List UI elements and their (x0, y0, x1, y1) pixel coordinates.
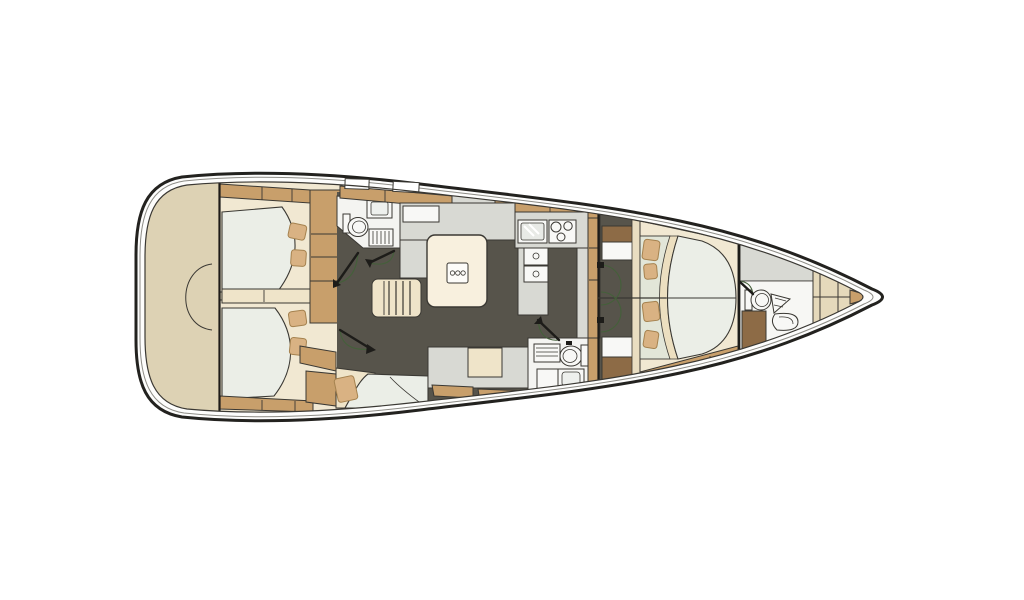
cabin-divider-shelf (222, 289, 310, 303)
pillow (334, 375, 359, 403)
shower-grate (534, 344, 560, 362)
refrigerator (524, 266, 548, 282)
refrigerator (524, 248, 548, 265)
deck-hatch (345, 179, 369, 190)
galley-counter-stbd (577, 248, 588, 338)
pillow (290, 250, 306, 267)
toilet-tank (581, 345, 588, 366)
vestibule-locker (602, 242, 635, 260)
cabin-foot-wall (306, 371, 336, 406)
wash-basin (772, 313, 798, 330)
nav-seat-cushion (468, 348, 502, 377)
interior (138, 180, 888, 420)
sideboard-appliance (403, 206, 439, 222)
pillow (288, 222, 308, 240)
sink-basin (371, 202, 388, 215)
locker-column (310, 190, 340, 281)
toilet-bowl (751, 290, 771, 310)
companionway-stairs (372, 279, 421, 317)
sideboard-leg (400, 240, 427, 278)
vestibule-cabinet (602, 226, 635, 242)
toilet-bowl (348, 218, 368, 237)
vestibule-locker (602, 337, 635, 357)
faucet (566, 341, 572, 345)
pillow (642, 239, 661, 261)
pillow (643, 330, 659, 349)
starboard-aft-berth-mattress (222, 308, 291, 399)
yacht-floor-plan (0, 0, 1024, 600)
pillow (643, 263, 657, 279)
vestibule-wall (632, 212, 640, 390)
pillow (288, 310, 307, 327)
pillow (642, 301, 660, 322)
yacht-floor-plan-canvas (0, 0, 1024, 600)
port-aft-berth-mattress (222, 207, 295, 291)
